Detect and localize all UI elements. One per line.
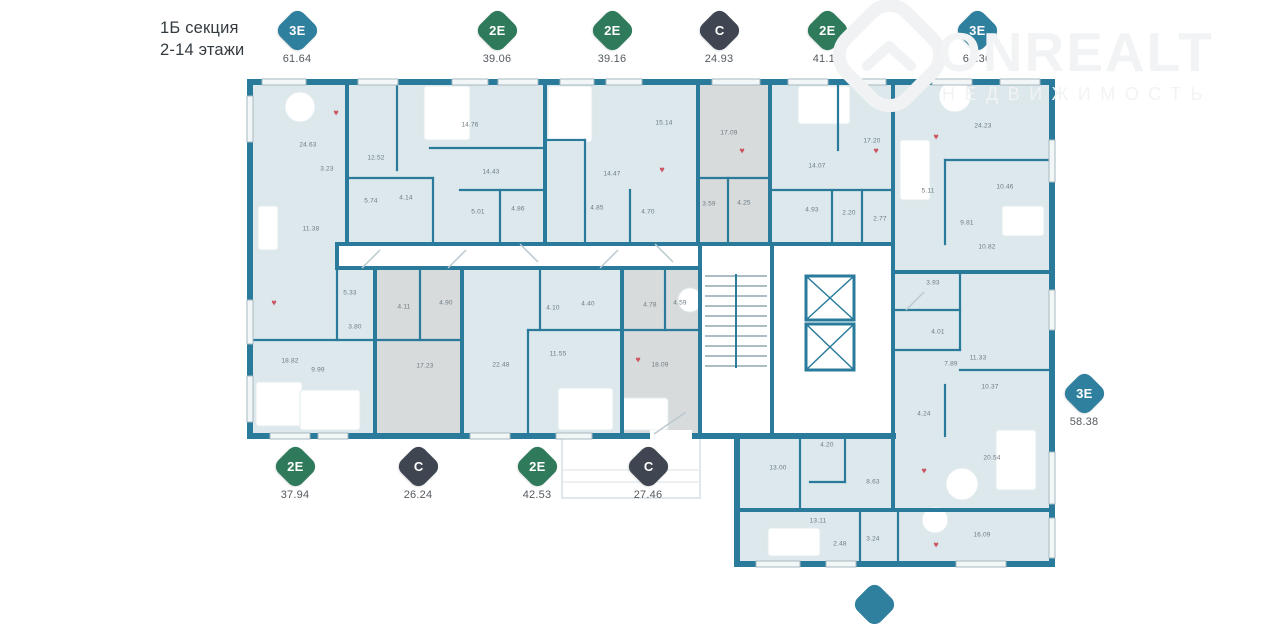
apartment-area: 27.46 — [610, 489, 686, 501]
apartment-type: 2Е — [819, 23, 836, 38]
room-area-label: 5.11 — [922, 188, 935, 195]
room-area-label: 4.10 — [546, 305, 559, 312]
favorite-heart-icon: ♥ — [271, 299, 276, 308]
apartment-type-diamond: 2Е — [272, 443, 319, 490]
room-area-label: 10.37 — [981, 384, 998, 391]
apartment-type: С — [643, 459, 653, 474]
room-area-label: 15.14 — [655, 120, 672, 127]
favorite-heart-icon: ♥ — [739, 147, 744, 156]
room-area-label: 22.48 — [492, 362, 509, 369]
room-area-label: 5.01 — [471, 209, 484, 216]
room-area-label: 10.46 — [996, 184, 1013, 191]
room-area-label: 4.40 — [581, 301, 594, 308]
apartment-badge-2e-37[interactable]: 2Е 37.94 — [257, 450, 333, 501]
apartment-type-diamond: С — [625, 443, 672, 490]
apartment-area: 41.17 — [789, 53, 865, 65]
room-area-label: 4.70 — [641, 209, 654, 216]
room-area-label: 10.82 — [978, 244, 995, 251]
room-area-label: 5.74 — [364, 198, 377, 205]
apartment-badge-3e-61[interactable]: 3Е 61.64 — [259, 14, 335, 65]
apartment-type: 2Е — [604, 23, 621, 38]
apartment-area: 24.93 — [681, 53, 757, 65]
favorite-heart-icon: ♥ — [659, 166, 664, 175]
floor-plan-page: 24.633.2312.525.744.1411.3814.7614.435.0… — [0, 0, 1280, 590]
room-area-label: 14.47 — [603, 171, 620, 178]
favorite-heart-icon: ♥ — [873, 147, 878, 156]
room-area-label: 4.20 — [820, 442, 833, 449]
room-area-label: 13.00 — [769, 465, 786, 472]
room-area-label: 4.25 — [737, 200, 750, 207]
apartment-badge-2e-39-16[interactable]: 2Е 39.16 — [574, 14, 650, 65]
apartment-type: 2Е — [287, 459, 304, 474]
apartment-type: 3Е — [969, 23, 986, 38]
floors-range: 2-14 этажи — [160, 39, 244, 61]
room-area-label: 17.23 — [416, 363, 433, 370]
apartment-badge-s-24[interactable]: С 24.93 — [681, 14, 757, 65]
favorite-heart-icon: ♥ — [921, 467, 926, 476]
apartment-type-diamond: 3Е — [274, 7, 321, 54]
apartment-area: 42.53 — [499, 489, 575, 501]
room-area-label: 20.54 — [983, 455, 1000, 462]
apartment-badge-2e-42[interactable]: 2Е 42.53 — [499, 450, 575, 501]
apartment-area: 39.06 — [459, 53, 535, 65]
favorite-heart-icon: ♥ — [933, 541, 938, 550]
room-area-label: 3.59 — [702, 201, 715, 208]
room-area-label: 4.85 — [590, 205, 603, 212]
apartment-area: 58.38 — [1046, 416, 1122, 428]
room-area-label: 11.33 — [970, 355, 987, 362]
room-area-label: 4.14 — [399, 195, 412, 202]
apartment-type-diamond: С — [696, 7, 743, 54]
apartment-badge-3e-64[interactable]: 3Е 64.36 — [939, 14, 1015, 65]
room-area-label: 17.09 — [720, 130, 737, 137]
favorite-heart-icon: ♥ — [933, 133, 938, 142]
apartment-badge-3e-58[interactable]: 3Е 58.38 — [1046, 377, 1122, 428]
room-area-label: 13.11 — [810, 518, 827, 525]
apartment-area: 64.36 — [939, 53, 1015, 65]
room-area-label: 4.01 — [931, 329, 944, 336]
apartment-type-diamond: С — [395, 443, 442, 490]
apartment-area: 61.64 — [259, 53, 335, 65]
apartment-type: 3Е — [1076, 386, 1093, 401]
apartment-type: 3Е — [289, 23, 306, 38]
room-area-label: 16.09 — [973, 532, 990, 539]
room-area-label: 3.24 — [866, 536, 879, 543]
room-area-label: 11.38 — [303, 226, 320, 233]
room-area-label: 4.86 — [511, 206, 524, 213]
room-area-label: 2.77 — [873, 216, 886, 223]
apartment-area: 37.94 — [257, 489, 333, 501]
apartment-type-diamond: 2Е — [514, 443, 561, 490]
room-area-label: 3.93 — [926, 280, 939, 287]
apartment-type: С — [714, 23, 724, 38]
section-title: 1Б секция 2-14 этажи — [160, 17, 244, 61]
apartment-badge-s-27[interactable]: С 27.46 — [610, 450, 686, 501]
room-area-label: 24.23 — [974, 123, 991, 130]
room-area-label: 17.20 — [863, 138, 880, 145]
apartment-type-diamond: 2Е — [589, 7, 636, 54]
room-area-label: 2.48 — [833, 541, 846, 548]
room-area-label: 4.11 — [398, 304, 411, 311]
room-area-label: 8.63 — [866, 479, 879, 486]
room-area-label: 24.63 — [299, 142, 316, 149]
room-area-label: 11.55 — [550, 351, 567, 358]
room-area-label: 18.82 — [281, 358, 298, 365]
favorite-heart-icon: ♥ — [333, 109, 338, 118]
apartment-type: 2Е — [489, 23, 506, 38]
room-area-label: 9.81 — [960, 220, 973, 227]
room-area-label: 4.78 — [643, 302, 656, 309]
apartment-badge-2e-41[interactable]: 2Е 41.17 — [789, 14, 865, 65]
room-area-label: 7.89 — [944, 361, 957, 368]
room-area-label: 4.90 — [439, 300, 452, 307]
apartment-area: 39.16 — [574, 53, 650, 65]
apartment-type: 2Е — [529, 459, 546, 474]
apartment-area: 26.24 — [380, 489, 456, 501]
section-name: 1Б секция — [160, 17, 244, 39]
room-area-label: 14.76 — [461, 122, 478, 129]
room-area-label: 12.52 — [367, 155, 384, 162]
apartment-type: С — [413, 459, 423, 474]
room-area-label: 14.43 — [482, 169, 499, 176]
room-area-label: 3.23 — [320, 166, 333, 173]
apartment-badge-s-26[interactable]: С 26.24 — [380, 450, 456, 501]
room-area-label: 3.80 — [348, 324, 361, 331]
apartment-type-diamond: 2Е — [804, 7, 851, 54]
room-area-label: 14.07 — [808, 163, 825, 170]
room-area-label: 18.09 — [651, 362, 668, 369]
apartment-type-diamond: 3Е — [954, 7, 1001, 54]
room-area-label: 9.99 — [311, 367, 324, 374]
apartment-type-diamond: 2Е — [474, 7, 521, 54]
room-area-label: 4.59 — [673, 300, 686, 307]
room-area-label: 2.20 — [842, 210, 855, 217]
room-area-label: 5.33 — [343, 290, 356, 297]
room-area-label: 4.93 — [805, 207, 818, 214]
apartment-type-diamond: 3Е — [1061, 370, 1108, 417]
favorite-heart-icon: ♥ — [635, 356, 640, 365]
apartment-badge-2e-39-06[interactable]: 2Е 39.06 — [459, 14, 535, 65]
room-area-label: 4.24 — [917, 411, 930, 418]
room-label-layer: 24.633.2312.525.744.1411.3814.7614.435.0… — [0, 0, 1280, 590]
